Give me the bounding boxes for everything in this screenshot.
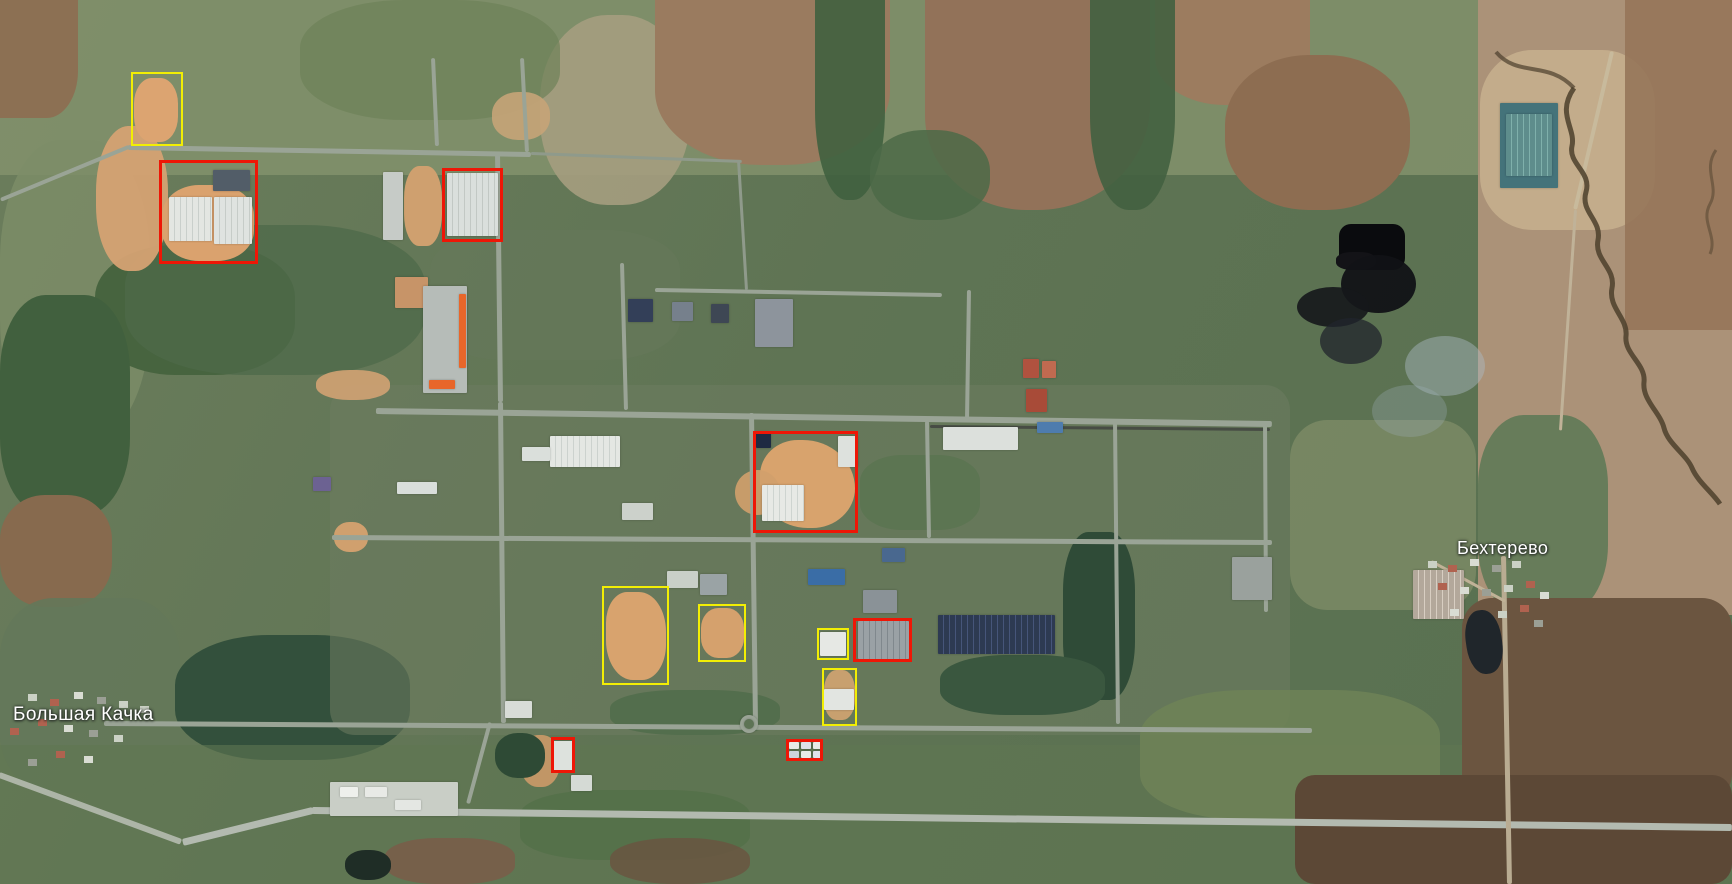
trees-right-2 — [940, 655, 1105, 715]
building-redroof-3 — [1026, 389, 1047, 412]
building-blue-small — [882, 548, 905, 562]
warehouse-long-orange-stripe — [459, 294, 466, 368]
house-bolshaya-kachka — [84, 756, 93, 763]
building-gray-1 — [672, 302, 693, 321]
road — [655, 288, 942, 297]
field-brown-d — [1225, 55, 1410, 210]
house-bekhterevo — [1534, 620, 1543, 627]
house-bekhterevo — [1438, 583, 1447, 590]
place-label-bekhterevo[interactable]: Бехтерево — [1457, 538, 1548, 559]
house-bolshaya-kachka — [28, 759, 37, 766]
field-brown-bc — [385, 838, 515, 884]
building-dark-1 — [711, 304, 729, 323]
industrial-north — [430, 230, 680, 360]
building-white-c1 — [667, 571, 698, 588]
river-path — [1496, 52, 1574, 88]
quarry-red2 — [404, 166, 442, 246]
forest-left-2 — [0, 295, 130, 515]
annotation-box-yellow-2 — [602, 586, 669, 685]
house-bolshaya-kachka — [10, 728, 19, 735]
house-bolshaya-kachka — [114, 735, 123, 742]
annotation-box-yellow-3 — [698, 604, 746, 662]
field-brown-b2 — [610, 838, 750, 884]
building-redroof-2 — [1042, 361, 1056, 378]
building-gray-east — [1232, 557, 1272, 600]
house-bolshaya-kachka — [74, 692, 83, 699]
building-gray-2 — [755, 299, 793, 347]
warehouse-above-red4 — [863, 590, 897, 613]
house-bolshaya-kachka — [28, 694, 37, 701]
warehouse-white-rail — [943, 427, 1018, 450]
basin-blue — [808, 569, 845, 585]
truckstop-unit-1 — [340, 787, 358, 797]
field-brown-tl — [0, 0, 78, 118]
satellite-map[interactable]: Большая КачкаБехтерево — [0, 0, 1732, 884]
annotation-box-yellow-5 — [822, 668, 857, 726]
trees-red5 — [495, 733, 545, 778]
house-bolshaya-kachka — [97, 697, 106, 704]
annotation-box-yellow-1 — [131, 72, 183, 146]
green-central — [860, 455, 980, 530]
building-gray-west — [383, 172, 403, 240]
road — [737, 160, 748, 290]
truckstop-unit-3 — [395, 800, 421, 810]
house-bekhterevo — [1448, 565, 1457, 572]
valley-green-2 — [1090, 0, 1175, 210]
house-bolshaya-kachka — [56, 751, 65, 758]
warehouse-navy-long — [938, 615, 1055, 654]
pond-bl — [345, 850, 391, 880]
house-bolshaya-kachka — [89, 730, 98, 737]
house-bekhterevo — [1450, 609, 1459, 616]
building-navy-1 — [628, 299, 653, 322]
house-bekhterevo — [1428, 561, 1437, 568]
house-bekhterevo — [1498, 611, 1507, 618]
warehouse-long-orange-dock — [429, 380, 455, 389]
building-below-red5 — [571, 775, 592, 791]
warehouse-central-white — [550, 436, 620, 467]
river — [1478, 0, 1732, 612]
quarry-topc — [492, 92, 550, 140]
building-white-mid — [622, 503, 653, 520]
building-redroof-1 — [1023, 359, 1039, 378]
smoke-3 — [1320, 318, 1382, 364]
terrain-base — [0, 0, 1732, 884]
steam-2 — [1372, 385, 1447, 437]
annotation-box-red-6 — [786, 739, 823, 761]
annotation-box-red-5 — [551, 737, 575, 773]
annotation-box-red-1 — [159, 160, 258, 264]
warehouse-central-wing — [522, 447, 550, 461]
annotation-box-red-3 — [753, 431, 858, 533]
building-blue-strip — [1037, 422, 1063, 433]
house-bekhterevo — [1460, 587, 1469, 594]
building-white-strip — [397, 482, 437, 494]
truckstop-unit-2 — [365, 787, 387, 797]
annotation-box-red-2 — [442, 168, 503, 242]
roundabout-island — [744, 719, 754, 729]
shed-violet — [313, 477, 331, 491]
annotation-box-yellow-4 — [817, 628, 849, 660]
annotation-box-red-4 — [853, 618, 912, 662]
field-brown-left — [0, 495, 112, 607]
quarry-mid1 — [316, 370, 390, 400]
river-path-main — [1566, 88, 1720, 504]
building-white-south — [505, 701, 532, 718]
valley-green-3 — [870, 130, 990, 220]
creek-path — [1707, 150, 1716, 254]
place-label-bolshaya-kachka[interactable]: Большая Качка — [13, 704, 154, 726]
building-gray-c2 — [700, 574, 727, 595]
house-bolshaya-kachka — [64, 725, 73, 732]
